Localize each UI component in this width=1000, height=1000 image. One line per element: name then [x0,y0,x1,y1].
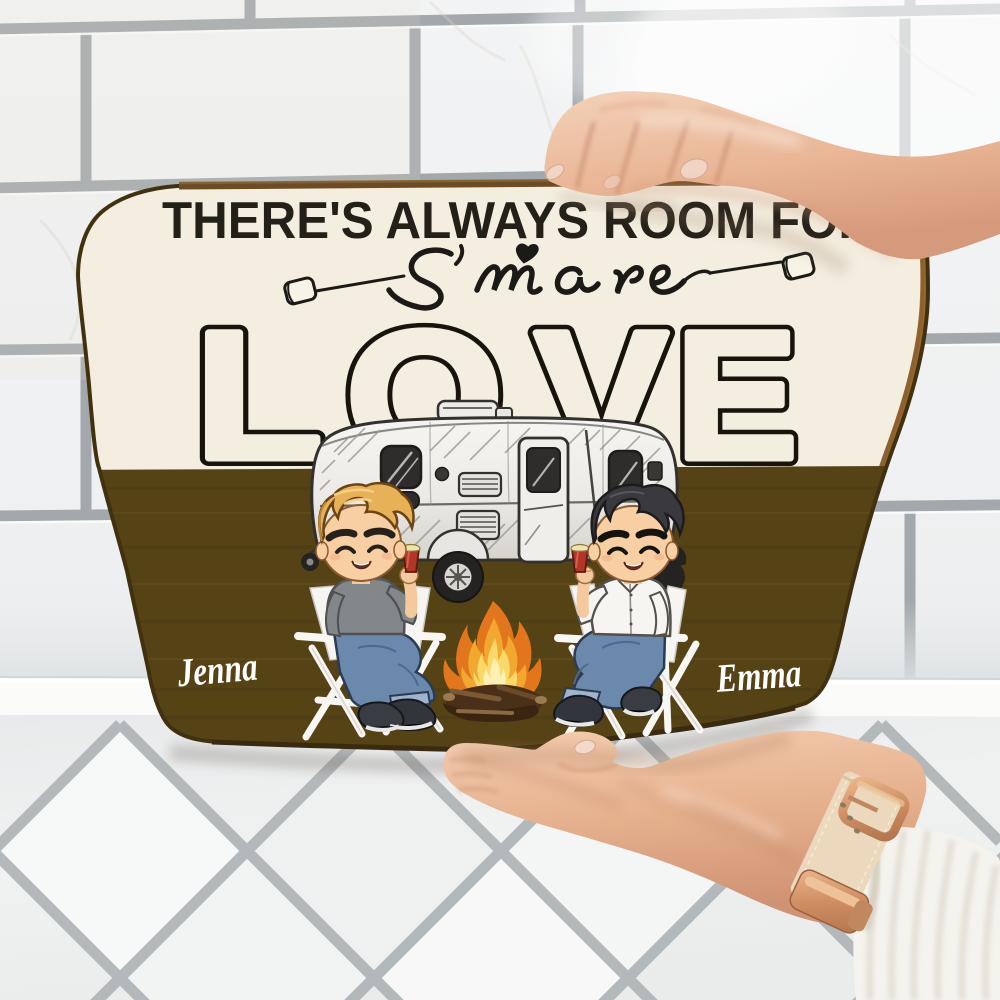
svg-text:L: L [195,293,323,497]
svg-text:Jenna: Jenna [175,644,259,696]
svg-text:Emma: Emma [714,650,803,701]
svg-text:E: E [676,293,797,497]
